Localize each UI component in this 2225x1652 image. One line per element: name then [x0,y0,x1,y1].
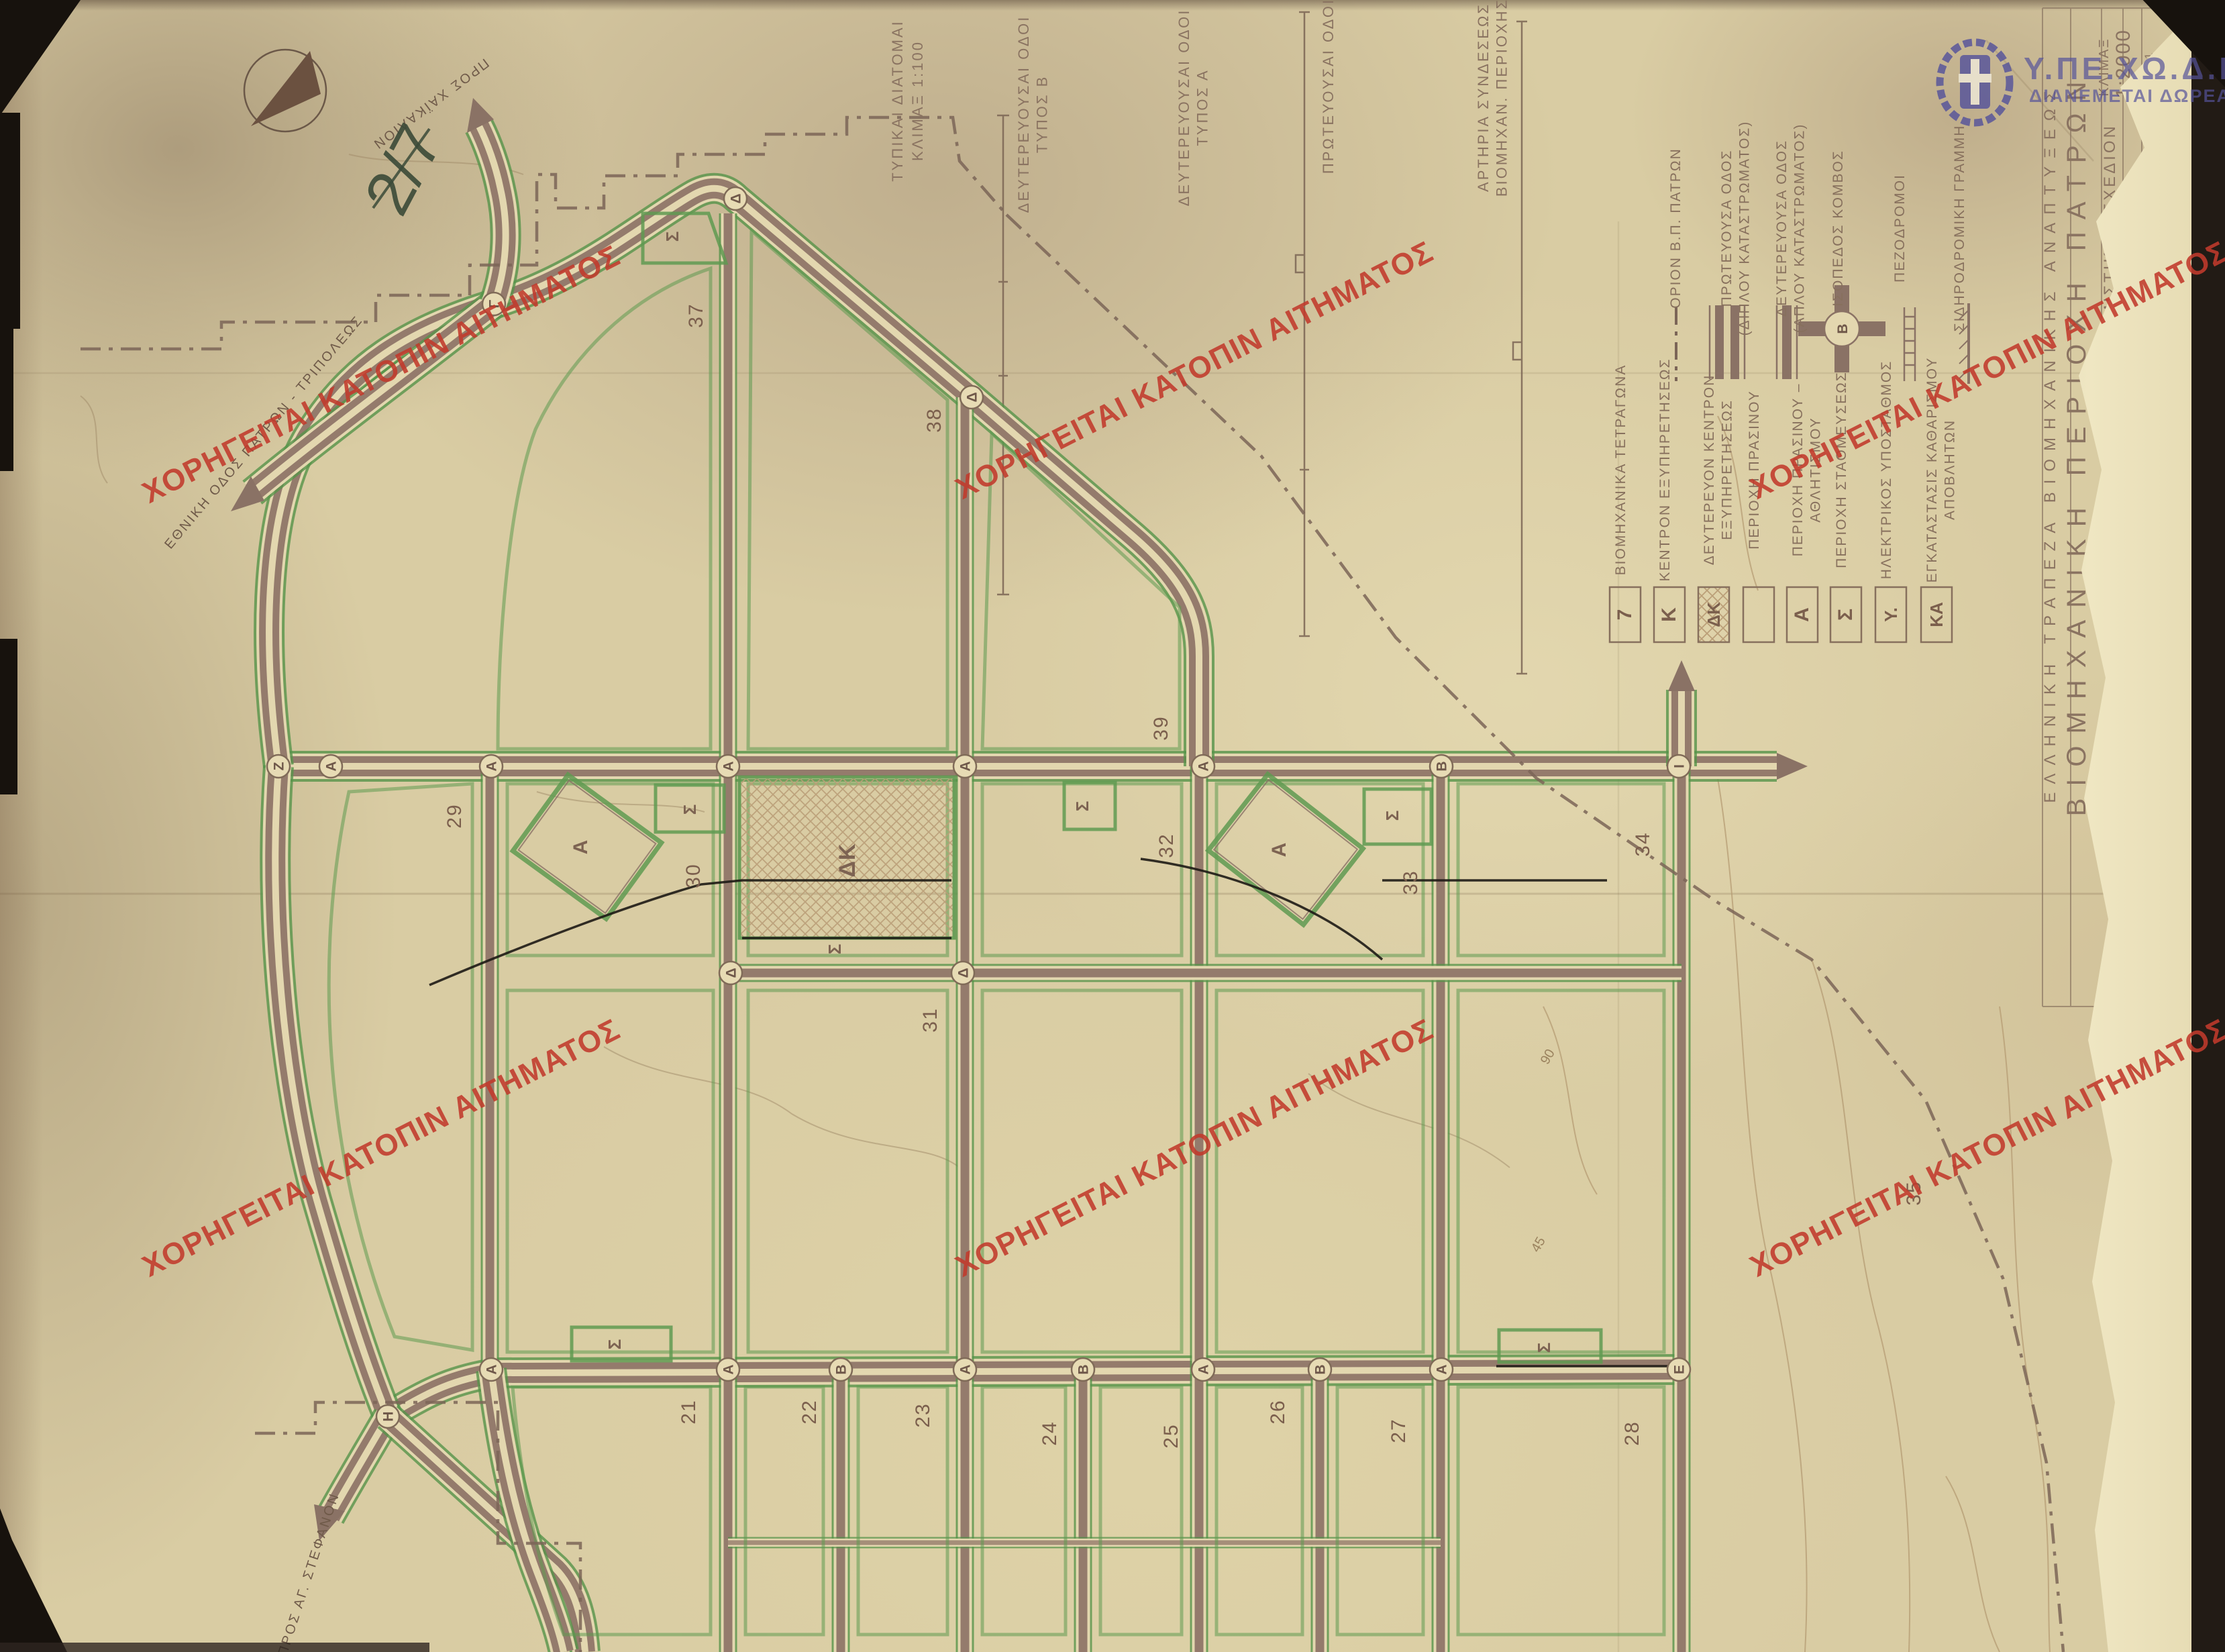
node-letter: Β [1435,761,1450,771]
legend-code-letter: ΚΑ [1926,602,1947,627]
node-letter: Α [484,1364,500,1374]
titleblock-organization: ΕΛΛΗΝΙΚΗ ΤΡΑΠΕΖΑ ΒΙΟΜΗΧΑΝΙΚΗΣ ΑΝΑΠΤΥΞΕΩΣ [2041,83,2059,803]
zone-label: Σ [605,1339,625,1350]
titleblock-area-title: ΒΙΟΜΗΧΑΝΙΚΗ ΠΕΡΙΟΧΗ ΠΑΤΡΩΝ [2062,70,2091,817]
legend-line-item-label: ΠΡΩΤΕΥΟΥΣΑ ΟΔΟΣ(ΔΙΠΛΟΥ ΚΑΤΑΣΤΡΩΜΑΤΟΣ) [1719,121,1752,336]
node-letter: Δ [729,193,744,203]
cross-section-label: ΔΕΥΤΕΡΕΥΟΥΣΑΙ ΟΔΟΙΤΥΠΟΣ Α [1176,9,1211,207]
legend-code-item-label: ΚΕΝΤΡΟΝ ΕΞΥΠΗΡΕΤΗΣΕΩΣ [1657,358,1673,581]
scan-edge-bottom [0,1643,429,1652]
north-arrow-icon [244,50,326,132]
handwritten-note-text: 2/7 [351,113,456,226]
zone-label: Α [1268,842,1290,858]
zone-label: Α [570,839,592,855]
block-outlines [329,231,1664,1635]
block-number: 37 [685,303,707,327]
node-letter: Ε [1672,1365,1688,1374]
scan-edge-left [0,113,20,329]
legend-code-item-label: ΠΕΡΙΟΧΗ ΠΡΑΣΙΝΟΥ [1747,390,1762,550]
block-number: 27 [1388,1418,1410,1443]
block-number: 26 [1267,1399,1289,1424]
block-number: 32 [1155,833,1178,858]
typical-cross-sections: ΤΥΠΙΚΑΙ ΔΙΑΤΟΜΑΙΚΛΙΜΑΞ 1:100ΔΕΥΤΕΡΕΥΟΥΣΑ… [889,0,1510,213]
zone-label: ΔΚ [835,843,860,878]
road-name-label: ΠΡΟΣ ΑΓ. ΣΤΕΦΑΝΟΝ [275,1490,342,1652]
legend-code-box [1743,587,1774,642]
scanned-map-sheet: ΖΑΑΑΑΑΒΙΑΑΒΑΒΑΒΑΕΓΔΔΗΔΔ 2122232425262728… [0,0,2225,1652]
legend: Β 7ΚΔΚΑΣΥ.ΚΑ ΟΡΙΟΝ Β.Π. ΠΑΤΡΩΝΠΡΩΤΕΥΟΥΣΑ… [1610,121,1969,642]
node-letter: Β [834,1364,849,1374]
legend-code-letter: Α [1791,607,1813,622]
node-letter: Β [1313,1364,1329,1374]
cross-section-label: ΔΕΥΤΕΡΕΥΟΥΣΑΙ ΟΔΟΙΤΥΠΟΣ Β [1015,15,1051,213]
map-paper: ΖΑΑΑΑΑΒΙΑΑΒΑΒΑΒΑΕΓΔΔΗΔΔ 2122232425262728… [0,0,2225,1652]
block-number: 31 [919,1007,941,1032]
block-number: 29 [444,803,466,828]
zone-label: Σ [680,804,700,815]
titleblock-scale-label: ΚΛΙΜΑΞ [2097,38,2112,96]
legend-code-letter: Σ [1834,609,1857,621]
node-letter: Ι [1672,764,1688,768]
block-number: 21 [678,1399,700,1424]
node-letter: Α [721,761,737,771]
utility-lines [429,859,1668,1366]
legend-code-letter: ΔΚ [1704,602,1724,627]
node-letter: Α [1196,1364,1212,1374]
cross-section-label: ΠΡΩΤΕΥΟΥΣΑΙ ΟΔΟΙ [1320,0,1337,174]
zone-label: Σ [1382,810,1402,821]
node-letter: Α [721,1364,737,1374]
node-letter: Α [324,761,340,771]
node-letter: Α [1196,761,1212,771]
legend-junction-letter: Β [1835,323,1851,333]
scan-edge-left [0,639,17,794]
map-labels: 212223242526272829303132333435373839ΔΚΣΣ… [162,55,1925,1652]
block-number: 39 [1150,715,1172,740]
node-letter: Α [1435,1364,1450,1374]
legend-line-item-label: ΟΡΙΟΝ Β.Π. ΠΑΤΡΩΝ [1668,148,1684,309]
cross-sections-heading: ΤΥΠΙΚΑΙ ΔΙΑΤΟΜΑΙΚΛΙΜΑΞ 1:100 [889,19,926,182]
zone-label: Σ [825,943,845,955]
node-letter: Β [1076,1364,1092,1374]
block-number: 38 [923,407,945,432]
legend-code-boxes: 7ΚΔΚΑΣΥ.ΚΑ [1610,587,1952,642]
legend-symbol-footpaths [1904,307,1915,381]
zone-label: Σ [1534,1342,1554,1353]
road [275,766,388,1416]
legend-line-item-label: ΔΕΥΤΕΡΕΥΟΥΣΑ ΟΔΟΣ(ΑΠΛΟΥ ΚΑΤΑΣΤΡΩΜΑΤΟΣ) [1774,123,1807,333]
block-number: 25 [1160,1423,1182,1448]
block-number: 23 [912,1402,934,1427]
zone-label: Σ [662,231,682,242]
legend-code-item-label: ΔΕΥΤΕΡΕΥΟΝ ΚΕΝΤΡΟΝΕΞΥΠΗΡΕΤΗΣΕΩΣ [1702,374,1735,566]
node-letter: Δ [956,968,972,978]
node-letter: Ζ [272,762,287,770]
arrow-east-icon [1777,753,1808,780]
zone-label: Σ [1072,801,1092,812]
legend-code-letter: Κ [1658,607,1680,622]
node-letter: Α [484,761,500,771]
legend-line-item-label: ΣΙΔΗΡΟΔΡΟΜΙΚΗ ΓΡΑΜΜΗ [1952,125,1967,332]
block-number: 28 [1621,1421,1643,1445]
road-network [252,126,1777,1652]
cross-section-drawings [997,12,1527,674]
legend-code-letter: 7 [1614,609,1636,621]
map-drawing: ΖΑΑΑΑΑΒΙΑΑΒΑΒΑΒΑΕΓΔΔΗΔΔ 2122232425262728… [0,0,2225,1652]
contour-label: 45 [1529,1235,1549,1255]
block-number: 22 [798,1399,821,1424]
block-number: 34 [1632,831,1654,856]
handwritten-note: 2/7 [351,113,456,226]
node-letter: Α [958,761,974,771]
block-number: 33 [1400,870,1422,894]
legend-code-item-label: ΕΓΚΑΤΑΣΤΑΣΙΣ ΚΑΘΑΡΙΣΜΟΥΑΠΟΒΛΗΤΩΝ [1924,357,1957,583]
block-number: 24 [1039,1421,1061,1445]
legend-line-item-label: ΙΣΟΠΕΔΟΣ ΚΟΜΒΟΣ [1830,150,1846,307]
cross-section-label: ΑΡΤΗΡΙΑ ΣΥΝΔΕΣΕΩΣΒΙΟΜΗΧΑΝ. ΠΕΡΙΟΧΗΣ [1475,0,1510,197]
arrow-north-icon [1668,660,1695,691]
legend-line-item-label: ΠΕΖΟΔΡΟΜΟΙ [1892,174,1908,282]
legend-code-item-label: ΠΕΡΙΟΧΗ ΣΤΑΘΜΕΥΣΕΩΣ [1834,371,1849,568]
paper-creases [0,40,2225,1652]
legend-code-item-label: ΠΕΡΙΟΧΗ ΠΡΑΣΙΝΟΥ –ΑΘΛΗΤΙΣΜΟΥ [1790,383,1823,557]
node-letter: Η [381,1411,397,1421]
legend-code-item-label: ΗΛΕΚΤΡΙΚΟΣ ΥΠΟΣΤΑΘΜΟΣ [1879,360,1894,579]
legend-code-letter: Υ. [1881,607,1901,622]
block-number: 35 [1903,1180,1925,1205]
node-letter: Α [958,1364,974,1374]
node-letter: Δ [965,392,980,402]
node-letter: Δ [724,968,739,978]
scan-edge-left [0,329,13,471]
legend-code-item-label: ΒΙΟΜΗΧΑΝΙΚΑ ΤΕΤΡΑΓΩΝΑ [1613,364,1628,576]
scan-edge-right [2191,0,2225,1652]
node-letter: Γ [487,299,503,308]
block-number: 30 [682,863,705,888]
road [388,1370,1681,1416]
contour-label: 90 [1538,1047,1558,1067]
